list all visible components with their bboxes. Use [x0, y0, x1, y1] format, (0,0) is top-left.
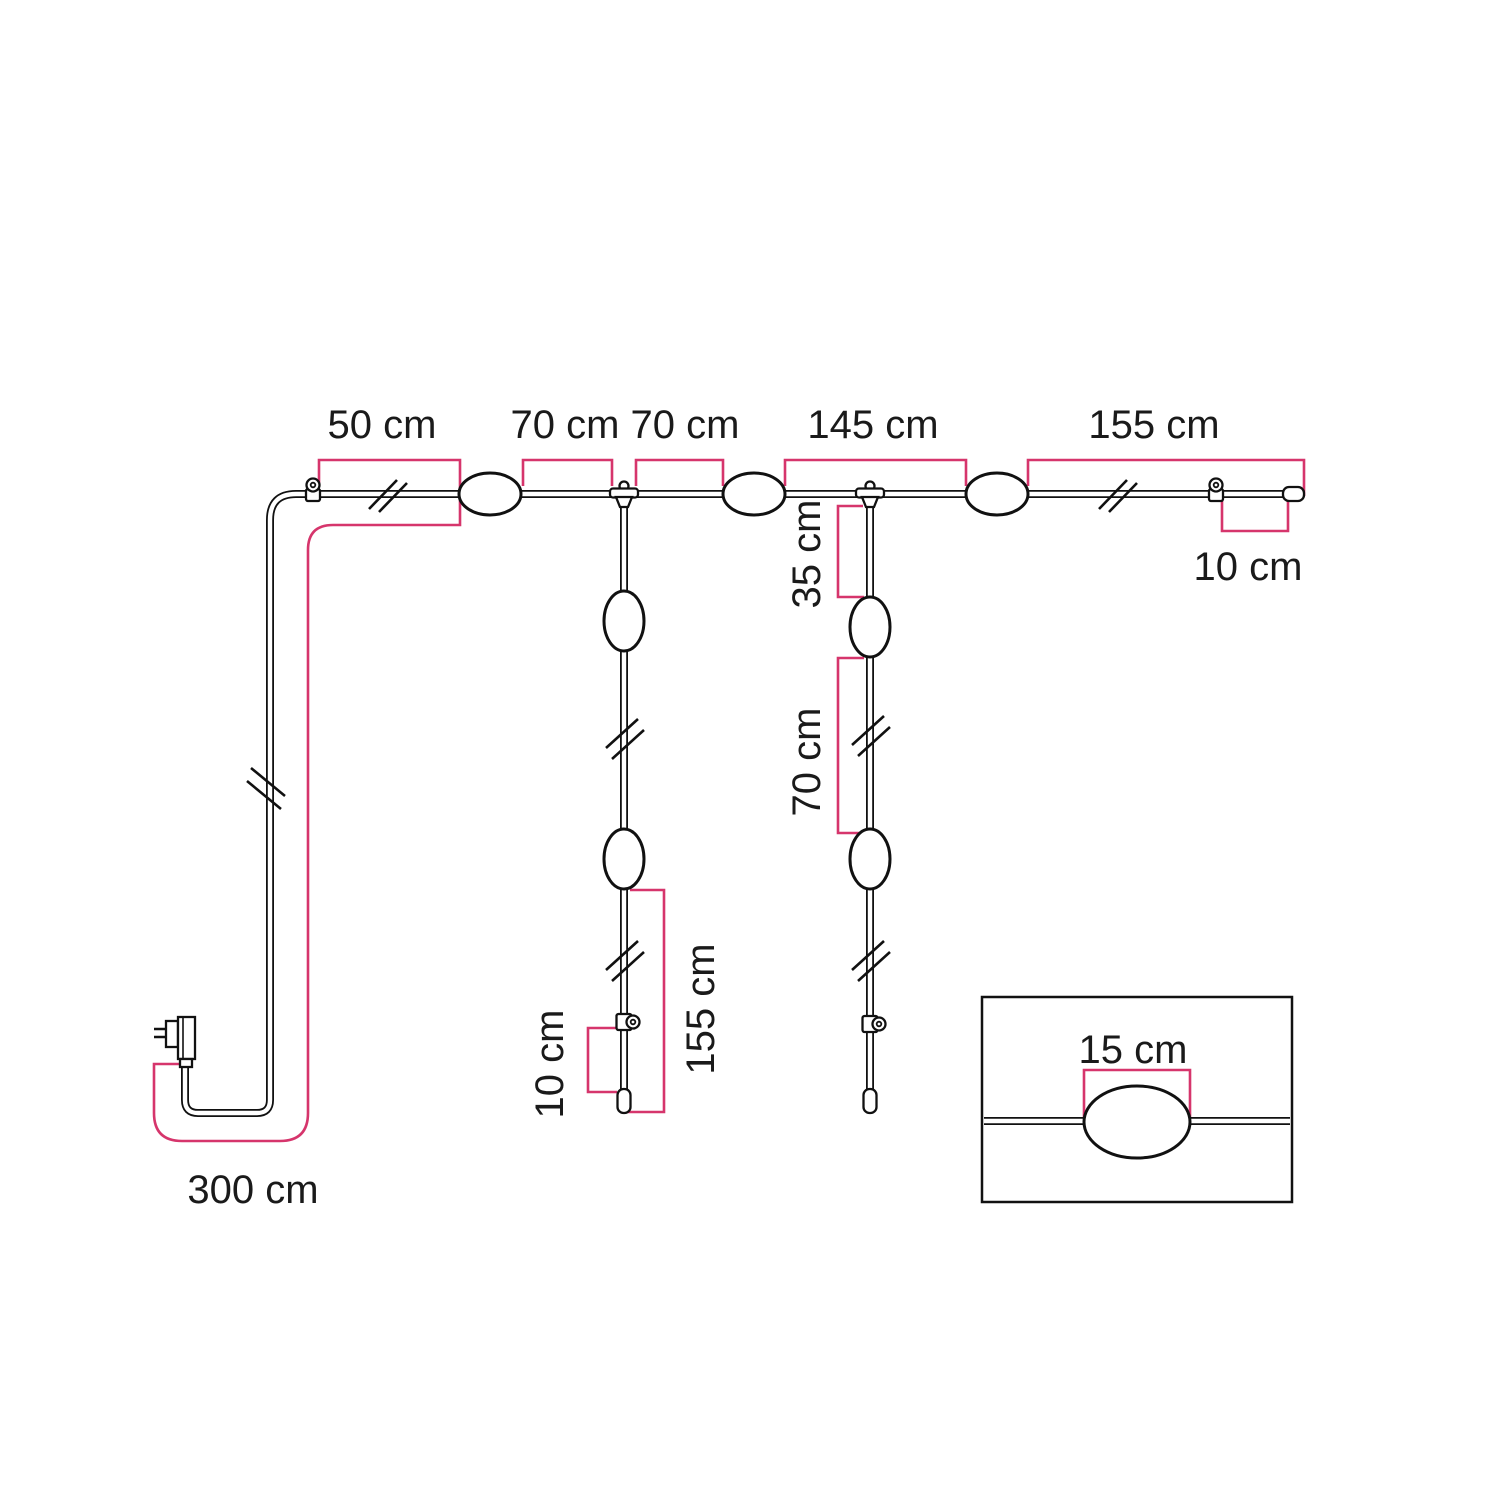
label-50cm: 50 cm: [328, 403, 437, 447]
lamp-drop-right-1: [850, 597, 890, 657]
label-70cm-a: 70 cm: [511, 403, 620, 447]
dimension-diagram: 50 cm 70 cm 70 cm 145 cm 155 cm 10 cm 30…: [0, 0, 1500, 1500]
lamp-drop-left-1: [604, 591, 644, 651]
lamp-drop-right-2: [850, 829, 890, 889]
hook-ring-hole: [311, 483, 316, 488]
hook-drop-right: [863, 1016, 886, 1032]
hook-top-left: [306, 479, 320, 502]
lamp-top-2: [723, 473, 785, 515]
t-connector-neck: [862, 497, 878, 507]
label-10cm-right: 10 cm: [1194, 545, 1303, 589]
end-cap-drop-left: [618, 1089, 631, 1113]
label-300cm: 300 cm: [187, 1168, 318, 1212]
plug-body: [178, 1017, 195, 1059]
label-145cm: 145 cm: [807, 403, 938, 447]
label-70cm-b: 70 cm: [631, 403, 740, 447]
hook-top-right: [1209, 479, 1223, 502]
label-70cm-drop: 70 cm: [785, 708, 829, 817]
label-15cm-inset: 15 cm: [1079, 1028, 1188, 1072]
label-155cm-top: 155 cm: [1088, 403, 1219, 447]
lamp-drop-left-2: [604, 829, 644, 889]
lamp-top-3: [966, 473, 1028, 515]
plug-face: [166, 1021, 178, 1047]
diagram-svg: 50 cm 70 cm 70 cm 145 cm 155 cm 10 cm 30…: [0, 0, 1500, 1500]
label-155cm-drop: 155 cm: [679, 943, 723, 1074]
diagram-background: [0, 0, 1500, 1500]
label-35cm-drop: 35 cm: [785, 500, 829, 609]
t-connector-neck: [616, 497, 632, 507]
hook-ring-hole: [631, 1020, 636, 1025]
plug-strain-relief: [180, 1059, 192, 1067]
hook-drop-left: [617, 1014, 640, 1030]
lamp-top-1: [459, 473, 521, 515]
hook-ring-hole: [1214, 483, 1219, 488]
end-cap-top-right: [1283, 487, 1304, 501]
hook-ring-hole: [877, 1022, 882, 1027]
end-cap-drop-right: [864, 1089, 877, 1113]
inset-lamp: [1084, 1086, 1190, 1158]
label-10cm-drop: 10 cm: [528, 1010, 572, 1119]
